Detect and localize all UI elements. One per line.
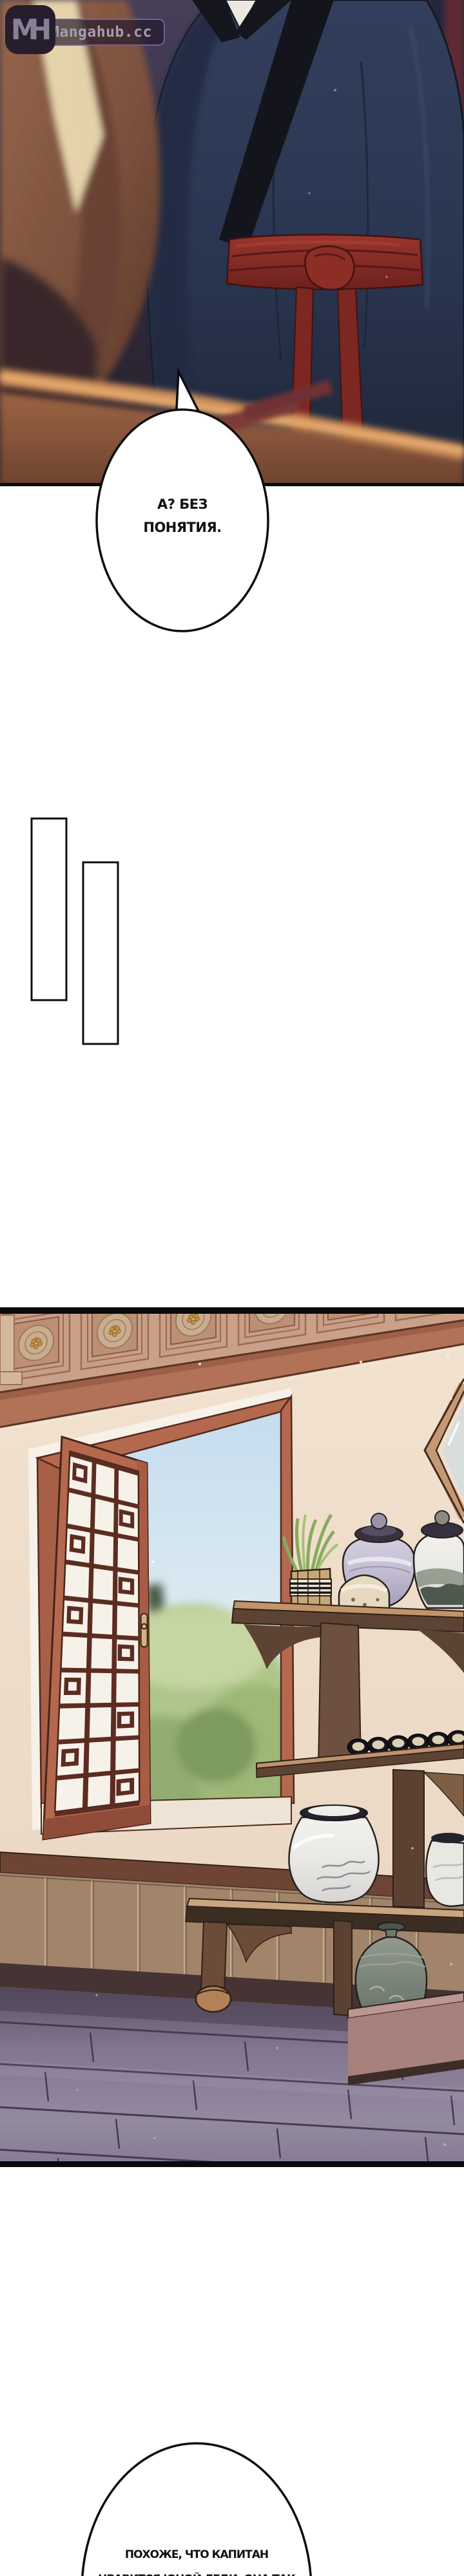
- frieze-coffer: [317, 1255, 384, 1332]
- porcelain-jar-right: [426, 1833, 464, 1906]
- bubble-1-line-2: ПОНЯТИЯ.: [143, 520, 221, 535]
- panel2-border-top: [0, 1307, 464, 1314]
- speech-bubble-2: ПОХОЖЕ, ЧТО КАПИТАН НРАВИТСЯ ЮНОЙ ЛЕДИ. …: [82, 2443, 311, 2576]
- watermark-site-name: Mangahub.cc: [50, 24, 152, 41]
- webtoon-page: А? БЕЗ ПОНЯТИЯ.: [0, 0, 464, 2576]
- sash-knot: [305, 246, 354, 289]
- frieze-coffer: [160, 1280, 227, 1357]
- bubble-2-line-1: ПОХОЖЕ, ЧТО КАПИТАН: [125, 2548, 268, 2561]
- frieze-coffer: [81, 1292, 148, 1369]
- frieze-coffer: [238, 1267, 305, 1345]
- empty-panel-tall-2: [83, 862, 118, 1044]
- shelf-post: [393, 1770, 424, 1908]
- bubble-2-line-2: НРАВИТСЯ ЮНОЙ ЛЕДИ. ОНА ТАК: [98, 2571, 296, 2576]
- panel-closeup-scene: [0, 0, 464, 486]
- table-leg: [201, 1922, 227, 1991]
- frieze-corbel: [0, 1315, 14, 1377]
- panel2-border-bottom: [0, 2161, 464, 2167]
- watermark-logo-initials: MH: [11, 14, 50, 46]
- empty-panel-tall-1: [32, 819, 66, 1000]
- lattice-door: [43, 1437, 150, 1839]
- porcelain-jar-large: [289, 1805, 379, 1902]
- panel-interior-scene: [0, 1243, 464, 2206]
- frieze-corbel: [0, 1372, 22, 1385]
- watermark-banner: Mangahub.cc: [37, 19, 165, 46]
- bubble-1-line-1: А? БЕЗ: [157, 497, 208, 512]
- site-watermark: Mangahub.cc MH: [5, 5, 186, 57]
- watermark-logo-icon: MH: [5, 5, 55, 54]
- shelf-post: [334, 1920, 352, 2016]
- door-handle: [141, 1613, 148, 1647]
